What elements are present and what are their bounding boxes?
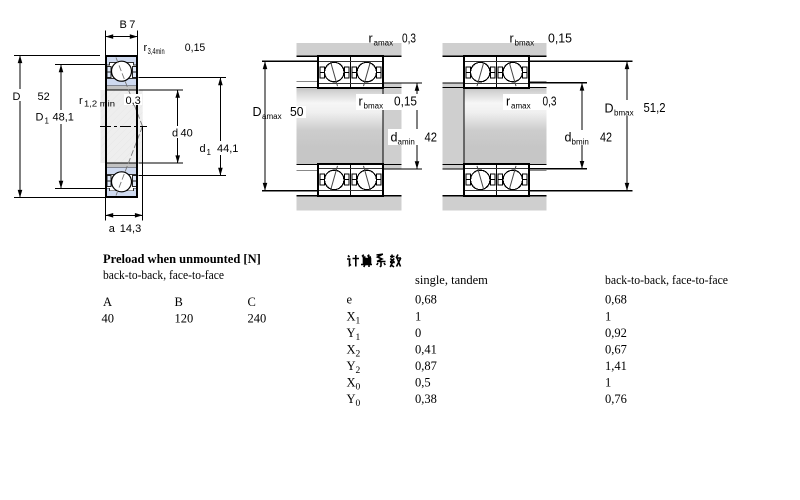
svg-text:Preload when unmounted [N]: Preload when unmounted [N] <box>103 252 261 266</box>
svg-text:0,68: 0,68 <box>605 293 627 307</box>
svg-text:0: 0 <box>356 399 361 409</box>
svg-text:0: 0 <box>356 383 361 393</box>
svg-text:amax: amax <box>511 102 531 111</box>
svg-text:0,3: 0,3 <box>543 95 557 109</box>
svg-text:1,41: 1,41 <box>605 359 627 373</box>
svg-text:1: 1 <box>356 317 361 327</box>
svg-text:single, tandem: single, tandem <box>415 273 488 287</box>
svg-text:Y: Y <box>347 326 356 340</box>
svg-text:bmax: bmax <box>364 102 384 111</box>
svg-text:0,3: 0,3 <box>126 95 141 107</box>
svg-text:52: 52 <box>38 91 50 103</box>
svg-text:240: 240 <box>248 312 267 326</box>
svg-text:Y: Y <box>347 359 356 373</box>
svg-text:0,15: 0,15 <box>394 95 417 109</box>
svg-text:2: 2 <box>356 366 361 376</box>
svg-text:1: 1 <box>45 117 50 126</box>
svg-text:A: A <box>103 295 112 309</box>
svg-text:back-to-back, face-to-face: back-to-back, face-to-face <box>605 273 728 287</box>
svg-text:0,38: 0,38 <box>415 392 437 406</box>
svg-text:D: D <box>605 102 614 116</box>
svg-text:C: C <box>248 295 256 309</box>
svg-text:1: 1 <box>605 376 611 390</box>
svg-text:d: d <box>200 143 206 155</box>
svg-text:B: B <box>120 19 127 31</box>
svg-text:B: B <box>175 295 183 309</box>
svg-text:amax: amax <box>262 112 282 121</box>
svg-text:D: D <box>253 105 262 119</box>
svg-text:3,4min: 3,4min <box>148 47 165 56</box>
svg-text:bmax: bmax <box>614 109 634 118</box>
svg-text:X: X <box>347 376 356 390</box>
svg-text:X: X <box>347 343 356 357</box>
svg-text:1: 1 <box>356 333 361 343</box>
svg-text:14,3: 14,3 <box>120 223 141 235</box>
svg-text:d: d <box>565 131 572 145</box>
svg-text:r: r <box>359 95 363 109</box>
svg-text:0,76: 0,76 <box>605 392 627 406</box>
svg-text:120: 120 <box>175 312 194 326</box>
svg-text:D: D <box>36 112 44 124</box>
svg-text:0,67: 0,67 <box>605 343 627 357</box>
svg-text:amax: amax <box>374 39 394 48</box>
svg-text:d: d <box>391 131 398 145</box>
svg-text:X: X <box>347 310 356 324</box>
svg-text:Y: Y <box>347 392 356 406</box>
svg-text:r: r <box>506 95 510 109</box>
svg-text:r: r <box>79 95 83 107</box>
svg-text:a: a <box>109 223 116 235</box>
svg-text:amin: amin <box>398 138 415 147</box>
svg-text:1: 1 <box>415 310 421 324</box>
svg-text:40: 40 <box>102 312 115 326</box>
svg-text:0,68: 0,68 <box>415 293 437 307</box>
svg-text:back-to-back, face-to-face: back-to-back, face-to-face <box>103 268 224 282</box>
svg-text:2: 2 <box>356 350 361 360</box>
svg-text:44,1: 44,1 <box>217 143 238 155</box>
svg-text:0: 0 <box>415 326 421 340</box>
svg-text:0,15: 0,15 <box>548 32 572 46</box>
svg-text:48,1: 48,1 <box>53 112 74 124</box>
svg-text:0,5: 0,5 <box>415 376 431 390</box>
svg-text:e: e <box>347 293 353 307</box>
svg-text:1: 1 <box>207 148 212 157</box>
svg-text:51,2: 51,2 <box>644 101 666 115</box>
svg-text:40: 40 <box>181 128 193 140</box>
svg-text:0,3: 0,3 <box>402 32 416 46</box>
svg-text:D: D <box>13 91 21 103</box>
svg-text:bmin: bmin <box>572 138 589 147</box>
svg-text:0,41: 0,41 <box>415 343 437 357</box>
svg-text:1,2 min: 1,2 min <box>84 100 115 109</box>
svg-text:0,92: 0,92 <box>605 326 627 340</box>
svg-text:0,87: 0,87 <box>415 359 437 373</box>
svg-text:r: r <box>369 32 373 46</box>
svg-text:r: r <box>510 32 514 46</box>
svg-text:42: 42 <box>425 131 438 145</box>
svg-text:bmax: bmax <box>515 39 535 48</box>
svg-text:50: 50 <box>290 105 304 119</box>
svg-text:7: 7 <box>129 19 135 31</box>
svg-text:42: 42 <box>600 131 612 145</box>
svg-text:d: d <box>172 128 178 140</box>
svg-text:1: 1 <box>605 310 611 324</box>
svg-text:0,15: 0,15 <box>185 42 206 54</box>
